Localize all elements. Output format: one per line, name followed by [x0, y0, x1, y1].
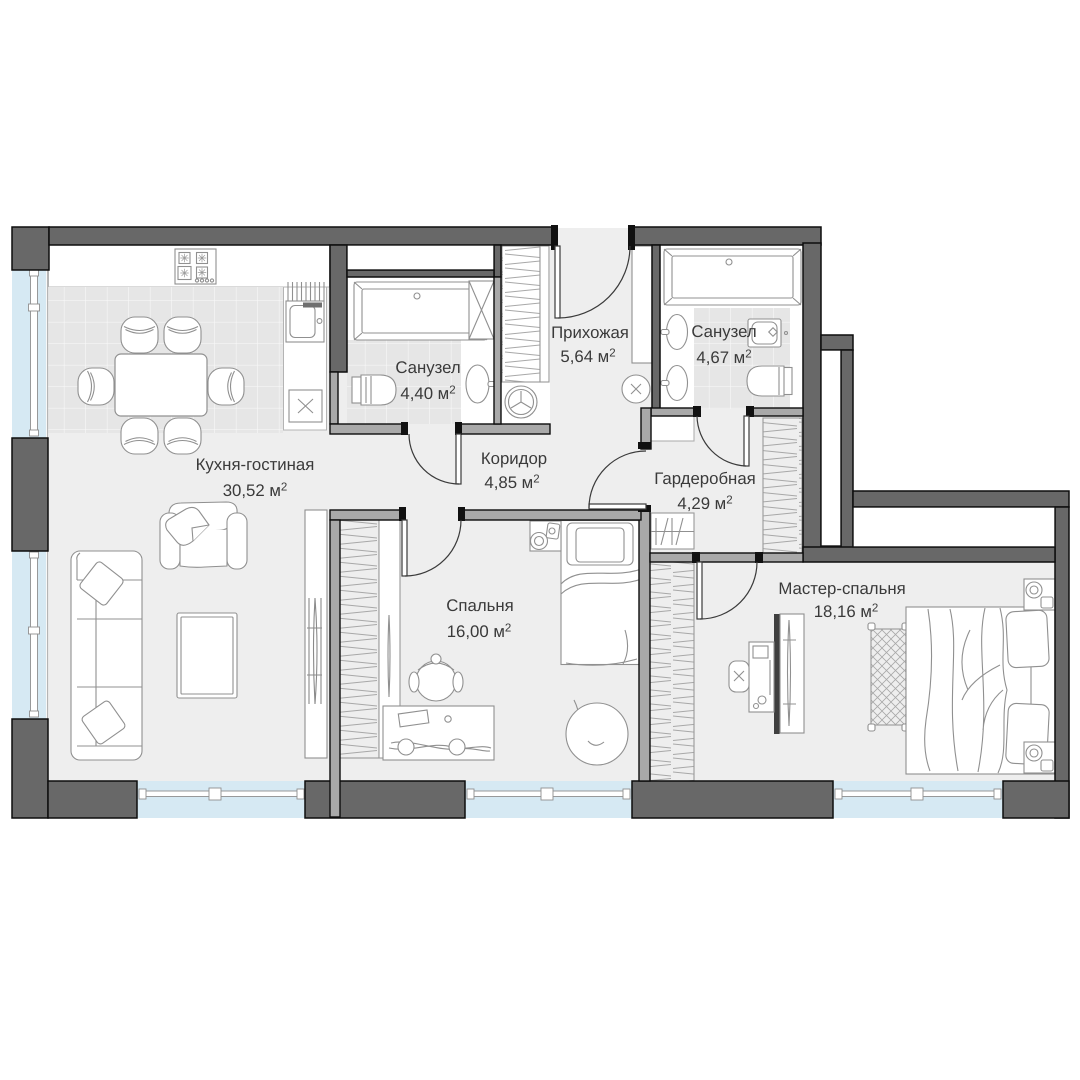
svg-text:4,40 м2: 4,40 м2	[400, 384, 455, 403]
svg-text:Кухня-гостиная: Кухня-гостиная	[196, 455, 315, 474]
svg-text:Гардеробная: Гардеробная	[654, 469, 756, 488]
svg-text:Прихожая: Прихожая	[551, 323, 629, 342]
svg-text:4,67 м2: 4,67 м2	[696, 348, 751, 367]
svg-text:Спальня: Спальня	[446, 596, 513, 615]
svg-text:Санузел: Санузел	[395, 358, 460, 377]
svg-text:16,00 м2: 16,00 м2	[447, 622, 512, 641]
svg-text:18,16 м2: 18,16 м2	[814, 602, 879, 621]
svg-text:5,64 м2: 5,64 м2	[560, 347, 615, 366]
svg-text:Санузел: Санузел	[691, 322, 756, 341]
svg-text:Коридор: Коридор	[481, 449, 547, 468]
svg-text:4,85 м2: 4,85 м2	[484, 473, 539, 492]
svg-text:4,29 м2: 4,29 м2	[677, 494, 732, 513]
svg-text:Мастер-спальня: Мастер-спальня	[778, 579, 905, 598]
svg-text:30,52 м2: 30,52 м2	[223, 481, 288, 500]
